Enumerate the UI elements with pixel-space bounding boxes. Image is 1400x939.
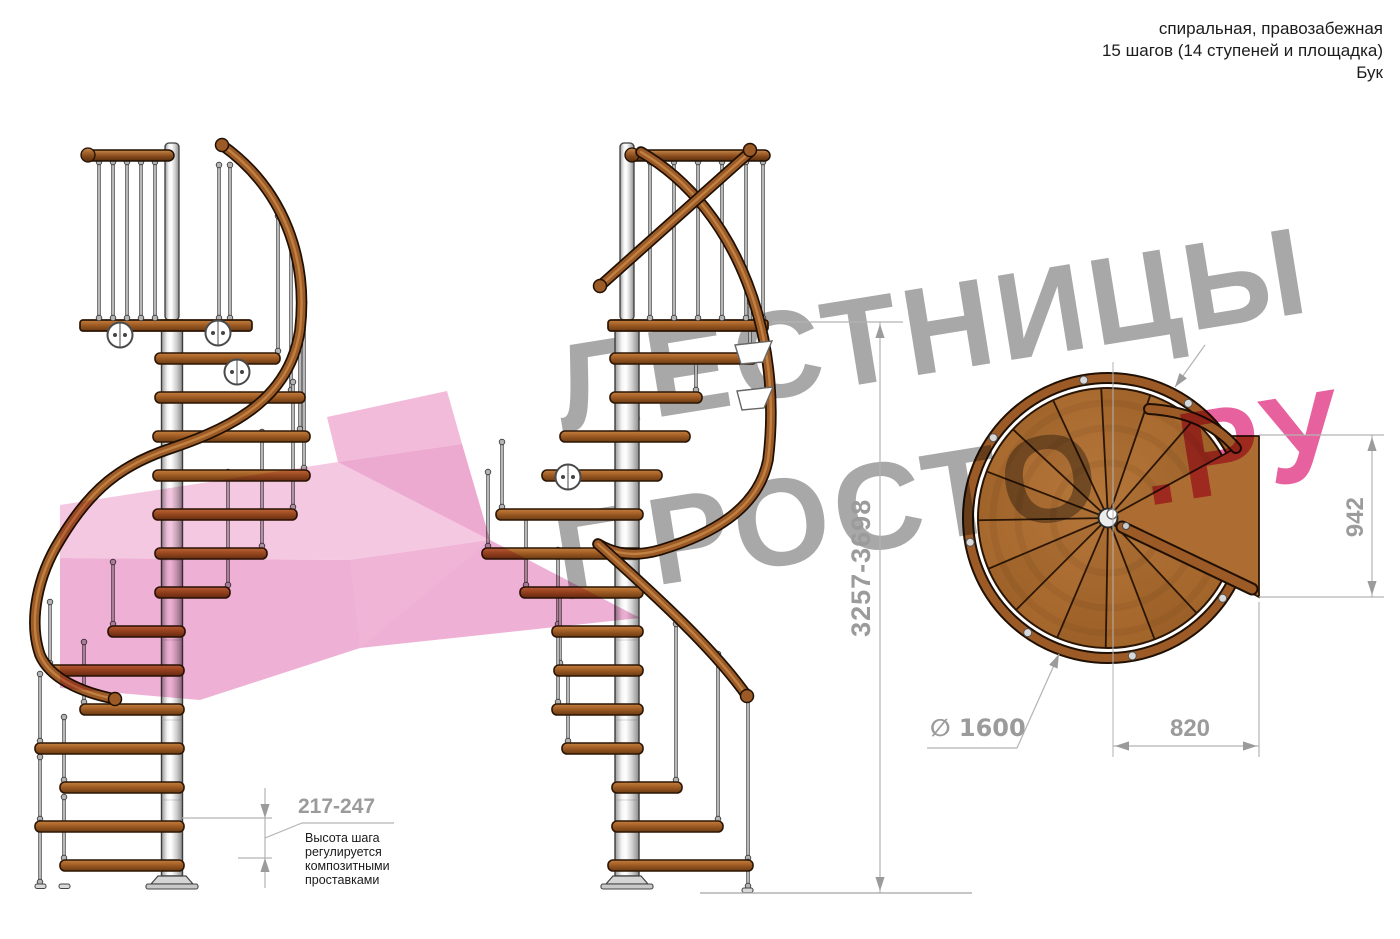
note-line: Высота шага	[305, 831, 390, 845]
dim-landing-width: 942	[1343, 467, 1369, 567]
dim-landing-depth: 820	[1140, 716, 1240, 742]
dim-total-height: 3257-3698	[847, 483, 877, 653]
title-steps: 15 шагов (14 ступеней и площадка)	[1102, 40, 1383, 62]
title-material: Бук	[1102, 62, 1383, 84]
step-height-note: Высота шага регулируется композитными пр…	[305, 831, 390, 887]
note-line: регулируется	[305, 845, 390, 859]
title-type: спиральная, правозабежная	[1102, 18, 1383, 40]
dim-diameter: ∅ 1600	[930, 715, 1050, 741]
drawing-canvas: ЛЕСТНИЦЫ ПРОСТО .РУ спиральная, правозаб…	[0, 0, 1400, 939]
dim-step-height: 217-247	[298, 795, 408, 818]
dimension-lines	[0, 0, 1400, 939]
note-line: проставками	[305, 873, 390, 887]
note-line: композитными	[305, 859, 390, 873]
title-block: спиральная, правозабежная 15 шагов (14 с…	[1102, 18, 1383, 84]
